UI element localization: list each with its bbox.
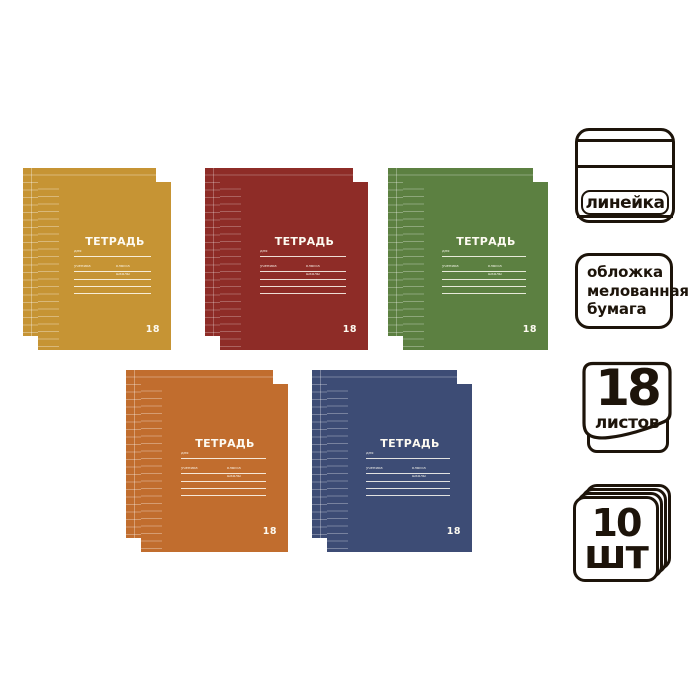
cover-sheet-count: 18: [523, 324, 537, 335]
field-label-for: для: [181, 451, 188, 455]
field-line: [442, 286, 526, 287]
field-label-class: класса: [227, 466, 241, 470]
notebook-front-cover: ТЕТРАДЬ для ученика класса школы 18: [220, 182, 368, 350]
cover-ruled-strip: [327, 384, 348, 552]
field-line: [181, 481, 266, 482]
field-line: [442, 256, 526, 257]
badge-sheet-count: 18 листов: [576, 361, 680, 459]
field-line: [366, 473, 450, 474]
field-label-class: класса: [412, 466, 426, 470]
stacked-sheet-front: 10 шт: [573, 496, 659, 582]
notebook-front-cover: ТЕТРАДЬ для ученика класса школы 18: [38, 182, 171, 350]
field-line: [260, 271, 346, 272]
notebook-front-cover: ТЕТРАДЬ для ученика класса школы 18: [403, 182, 548, 350]
field-line: [181, 488, 266, 489]
field-label-for: для: [74, 249, 81, 253]
cover-name-fields: для ученика класса школы: [442, 182, 526, 350]
field-line: [74, 279, 151, 280]
badge-cover-material: обложка мелованная бумага: [575, 253, 673, 329]
ruled-line-icon: [577, 215, 673, 218]
ruled-line-icon: [577, 139, 673, 142]
cover-sheet-count: 18: [343, 324, 357, 335]
notebook-front-cover: ТЕТРАДЬ для ученика класса школы 18: [141, 384, 288, 552]
field-label-class: класса: [488, 264, 502, 268]
field-line: [366, 488, 450, 489]
sheet-count-number: 18: [580, 363, 674, 413]
field-label-student: ученика: [442, 264, 459, 268]
cover-name-fields: для ученика класса школы: [181, 384, 266, 552]
field-label-student: ученика: [181, 466, 198, 470]
cover-name-fields: для ученика класса школы: [260, 182, 346, 350]
field-line: [181, 495, 266, 496]
notebook-pair-green: ТЕТРАДЬ для ученика класса школы 18: [388, 168, 548, 350]
field-line: [181, 458, 266, 459]
field-line: [260, 293, 346, 294]
field-line: [366, 481, 450, 482]
notebook-pair-orange: ТЕТРАДЬ для ученика класса школы 18: [126, 370, 288, 552]
field-line: [74, 256, 151, 257]
sheet-count-unit: листов: [580, 413, 674, 433]
field-line: [260, 286, 346, 287]
badge-material-line3: бумага: [587, 300, 670, 319]
cover-ruled-strip: [403, 182, 424, 350]
cover-sheet-count: 18: [146, 324, 160, 335]
cover-sheet-count: 18: [447, 526, 461, 537]
field-line: [366, 495, 450, 496]
field-line: [442, 279, 526, 280]
notebook-pair-blue: ТЕТРАДЬ для ученика класса школы 18: [312, 370, 472, 552]
field-label-school: школы: [306, 272, 320, 276]
field-line: [74, 271, 151, 272]
field-line: [181, 473, 266, 474]
quantity-unit: шт: [584, 540, 648, 570]
field-line: [74, 286, 151, 287]
field-line: [260, 256, 346, 257]
field-line: [442, 293, 526, 294]
badge-ruling: линейка: [575, 128, 675, 223]
field-label-student: ученика: [260, 264, 277, 268]
field-label-for: для: [366, 451, 373, 455]
badge-material-line1: обложка: [587, 263, 670, 282]
notebook-front-cover: ТЕТРАДЬ для ученика класса школы 18: [327, 384, 472, 552]
field-label-student: ученика: [366, 466, 383, 470]
field-line: [260, 279, 346, 280]
cover-sheet-count: 18: [263, 526, 277, 537]
field-label-school: школы: [412, 474, 426, 478]
ruled-line-icon: [577, 165, 673, 168]
cover-name-fields: для ученика класса школы: [74, 182, 151, 350]
cover-ruled-strip: [141, 384, 162, 552]
notebook-pair-red: ТЕТРАДЬ для ученика класса школы 18: [205, 168, 368, 350]
field-line: [74, 293, 151, 294]
field-line: [366, 458, 450, 459]
field-label-for: для: [442, 249, 449, 253]
badge-material-line2: мелованная: [587, 282, 670, 301]
field-line: [442, 271, 526, 272]
cover-ruled-strip: [38, 182, 59, 350]
field-label-school: школы: [116, 272, 130, 276]
field-label-class: класса: [306, 264, 320, 268]
badge-ruling-label: линейка: [581, 190, 669, 215]
notebook-pair-yellow: ТЕТРАДЬ для ученика класса школы 18: [23, 168, 171, 350]
badge-quantity: 10 шт: [573, 484, 674, 585]
field-label-for: для: [260, 249, 267, 253]
field-label-class: класса: [116, 264, 130, 268]
field-label-school: школы: [488, 272, 502, 276]
field-label-school: школы: [227, 474, 241, 478]
field-label-student: ученика: [74, 264, 91, 268]
cover-name-fields: для ученика класса школы: [366, 384, 450, 552]
cover-ruled-strip: [220, 182, 241, 350]
